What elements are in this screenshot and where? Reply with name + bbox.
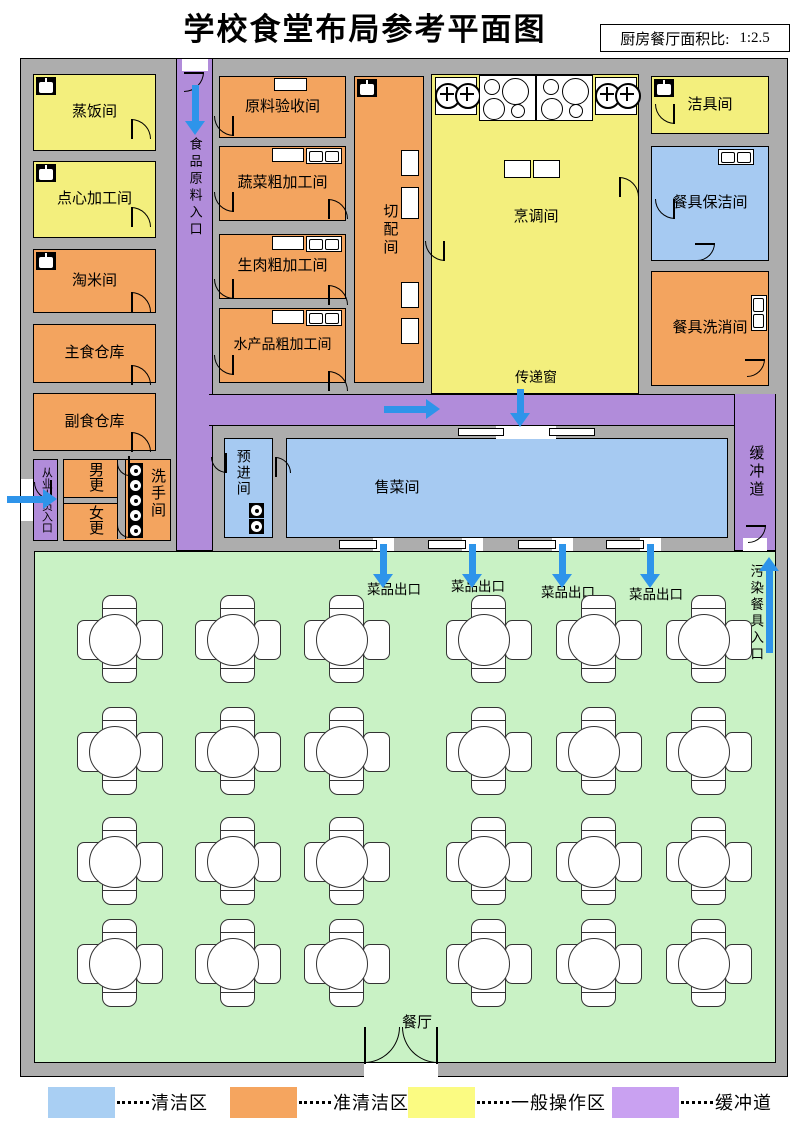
room-label: 洁具间 (687, 96, 732, 115)
door-jamb (436, 1027, 438, 1064)
door-icon (131, 432, 151, 452)
room-raw-meat: 生肉粗加工间 (219, 234, 346, 299)
room-label: 售菜间 (374, 479, 419, 498)
door-icon (328, 371, 348, 391)
door-icon (747, 359, 765, 377)
table-area (35, 552, 775, 1062)
legend-leader (681, 1101, 713, 1104)
burner-icon (543, 79, 559, 95)
dining-table (555, 817, 643, 905)
double-sink-icon (306, 310, 342, 326)
burner-icon (562, 78, 589, 105)
door-icon (697, 243, 715, 261)
legend-item-clean: 清洁区 (48, 1086, 208, 1118)
double-sink-icon (306, 148, 342, 164)
burner-icon (502, 78, 529, 105)
flow-arrow-icon (185, 85, 205, 135)
ratio-label: 厨房餐厅面积比: (620, 28, 729, 49)
legend-item-semiclean: 准清洁区 (230, 1086, 409, 1118)
flow-arrow-icon (384, 399, 440, 419)
sink-icon (357, 79, 377, 97)
legend-swatch (230, 1087, 297, 1118)
door-leaf-icon (364, 1027, 400, 1063)
room-label: 男更 (86, 462, 104, 492)
door-icon (655, 199, 675, 219)
floor-plan: 蒸饭间 点心加工间 淘米间 主食仓库 副食仓库 从业人员入口 男更 女更 (20, 58, 788, 1077)
burner-icon (511, 104, 525, 118)
door-icon (131, 292, 151, 312)
room-vegetable: 蔬菜粗加工间 (219, 146, 346, 221)
room-label: 水产品粗加工间 (234, 337, 332, 355)
room-cooking: 烹调间 传递窗 (431, 74, 639, 394)
room-label: 缓冲道 (746, 445, 765, 499)
ingredient-entrance-opening (182, 59, 208, 71)
dining-table (555, 707, 643, 795)
flow-arrow-icon (510, 389, 530, 427)
dining-table (76, 707, 164, 795)
worktable (401, 282, 419, 308)
burner-icon (483, 98, 505, 120)
door-icon (214, 116, 234, 136)
counter (606, 540, 644, 549)
worktable (401, 150, 419, 176)
dining-table (445, 707, 533, 795)
legend-leader (299, 1101, 331, 1104)
legend-leader (477, 1101, 509, 1104)
room-pre-entry: 预进间 (224, 438, 273, 538)
double-door-icon (364, 1027, 438, 1064)
sink-icon (36, 164, 56, 182)
dining-entrance-opening (364, 1063, 438, 1077)
door-leaf-icon (402, 1027, 438, 1063)
dining-table (194, 817, 282, 905)
flow-arrow-icon (7, 489, 57, 509)
corridor-label: 食品原料入口 (187, 137, 203, 239)
flow-arrow-icon (552, 544, 572, 588)
counter (428, 540, 466, 549)
flow-arrow-icon (759, 557, 779, 653)
worktable (401, 318, 419, 344)
double-burner-icon (595, 77, 637, 115)
dining-table (303, 595, 391, 683)
dining-table (303, 707, 391, 795)
room-selling: 售菜间 (286, 438, 728, 538)
door-icon (117, 463, 130, 476)
range-stove-icon (536, 75, 593, 121)
dining-table (303, 919, 391, 1007)
washbasin-icon (128, 478, 143, 493)
sink-icon (36, 252, 56, 270)
washbasin-icon (128, 493, 143, 508)
room-label: 点心加工间 (57, 190, 132, 209)
counter (339, 540, 377, 549)
double-burner-icon (435, 77, 477, 115)
worktable (272, 148, 304, 162)
dining-table (303, 817, 391, 905)
door-icon (211, 457, 227, 473)
legend-swatch (612, 1087, 679, 1118)
room-label: 女更 (86, 505, 104, 535)
range-stove-icon (479, 75, 536, 121)
legend-leader (117, 1101, 149, 1104)
room-label: 烹调间 (497, 208, 575, 226)
legend-swatch (408, 1087, 475, 1118)
door-icon (214, 192, 234, 212)
room-label: 原料验收间 (245, 98, 320, 117)
legend-label: 清洁区 (151, 1089, 208, 1115)
room-steaming: 蒸饭间 (33, 74, 156, 151)
burner-icon (541, 98, 563, 120)
double-sink-icon (751, 295, 767, 331)
sink-icon (654, 79, 674, 97)
legend-label: 缓冲道 (715, 1089, 772, 1115)
room-label: 蔬菜粗加工间 (237, 174, 327, 193)
door-icon (328, 199, 348, 219)
double-sink-icon (718, 149, 754, 165)
dining-table (665, 707, 753, 795)
worktable (401, 187, 419, 219)
double-sink-icon (306, 236, 342, 252)
door-icon (655, 104, 675, 124)
room-label: 主食仓库 (64, 344, 124, 363)
worktable (274, 78, 307, 91)
worktable (504, 160, 531, 178)
room-acceptance: 原料验收间 (219, 76, 346, 138)
door-icon (619, 177, 639, 197)
worktable (533, 160, 560, 178)
transfer-window-label: 传递窗 (498, 371, 574, 388)
legend-item-general: 一般操作区 (408, 1086, 606, 1118)
room-label: 餐具保洁间 (672, 194, 747, 213)
dining-table (76, 919, 164, 1007)
page-title: 学校食堂布局参考平面图 (45, 4, 685, 49)
dining-table (665, 595, 753, 683)
door-icon (748, 525, 766, 543)
burner-icon (484, 79, 500, 95)
washbasin-icon (128, 508, 143, 523)
room-aquatic: 水产品粗加工间 (219, 308, 346, 383)
door-icon (131, 207, 151, 227)
dining-table (555, 595, 643, 683)
flow-arrow-icon (373, 544, 393, 588)
room-label: 生肉粗加工间 (237, 257, 327, 276)
door-icon (275, 457, 291, 473)
washbasin-icon (128, 523, 143, 538)
kitchen-corridor (209, 394, 776, 426)
legend-item-buffer: 缓冲道 (612, 1086, 772, 1118)
counter (549, 428, 595, 436)
dining-table (665, 817, 753, 905)
legend-label: 准清洁区 (333, 1089, 409, 1115)
dining-table (194, 919, 282, 1007)
door-jamb (364, 1027, 366, 1064)
area-ratio-box: 厨房餐厅面积比: 1:2.5 (600, 24, 790, 52)
dining-table (445, 595, 533, 683)
door-icon (117, 525, 130, 538)
floor-plan-page: 学校食堂布局参考平面图 厨房餐厅面积比: 1:2.5 蒸饭间 点心加工间 淘米间… (0, 0, 795, 1124)
worktable (272, 310, 304, 324)
dining-table (76, 817, 164, 905)
door-icon (214, 279, 234, 299)
burner-icon (455, 83, 481, 109)
legend-swatch (48, 1087, 115, 1118)
dining-hall: 菜品出口 菜品出口 菜品出口 菜品出口 污染餐具入口 餐厅 (34, 551, 776, 1063)
room-label: 蒸饭间 (72, 103, 117, 122)
door-icon (425, 241, 445, 261)
washbasin-icon (249, 503, 264, 518)
transfer-window-opening (496, 426, 556, 439)
room-label: 副食仓库 (64, 413, 124, 432)
flow-arrow-icon (462, 544, 482, 588)
washbasin-icon (249, 519, 264, 534)
room-cutting: 切配间 (354, 76, 424, 383)
dining-table (445, 817, 533, 905)
dining-table (445, 919, 533, 1007)
burner-icon (615, 83, 641, 109)
worktable (272, 236, 304, 250)
door-icon (131, 119, 151, 139)
counter (518, 540, 556, 549)
washbasin-icon (128, 463, 143, 478)
ratio-value: 1:2.5 (739, 30, 769, 47)
counter (458, 428, 504, 436)
sink-icon (36, 77, 56, 95)
door-icon (131, 365, 151, 385)
room-label: 预进间 (233, 449, 250, 497)
dining-table (665, 919, 753, 1007)
legend-label: 一般操作区 (511, 1089, 606, 1115)
dining-table (555, 919, 643, 1007)
room-label: 淘米间 (72, 272, 117, 291)
wall (64, 497, 117, 504)
flow-arrow-icon (640, 544, 660, 588)
room-label: 切配间 (380, 203, 399, 257)
door-icon (214, 355, 234, 375)
dining-table (194, 707, 282, 795)
room-label: 餐具洗消间 (672, 319, 747, 338)
burner-icon (569, 104, 583, 118)
room-label: 洗手间 (148, 468, 166, 519)
dining-table (194, 595, 282, 683)
dining-table (76, 595, 164, 683)
door-icon (328, 285, 348, 305)
